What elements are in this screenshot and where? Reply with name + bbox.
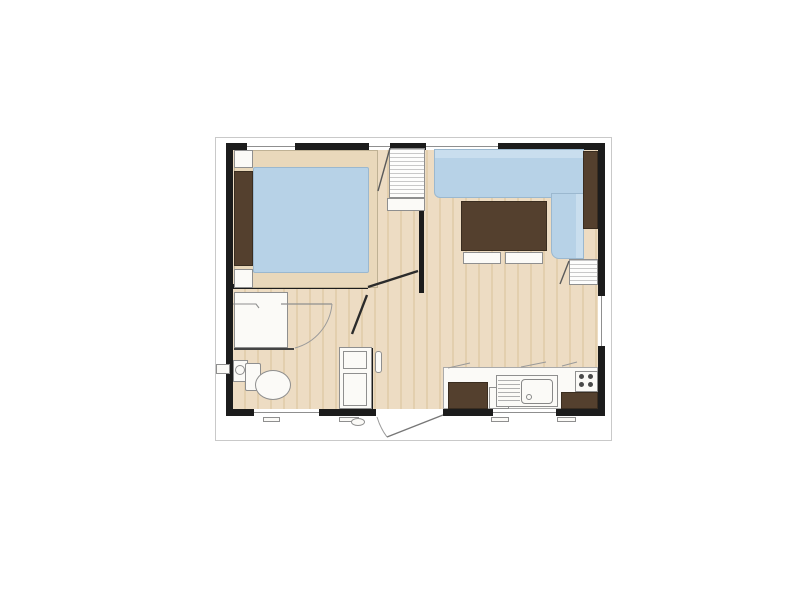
shelf-unit xyxy=(569,259,598,285)
burner-3 xyxy=(579,382,584,387)
burner-2 xyxy=(588,374,593,379)
entry-door-opening xyxy=(376,409,443,416)
wardrobe-base xyxy=(387,198,425,211)
burner-1 xyxy=(579,374,584,379)
entry-door-leaf xyxy=(387,415,443,437)
coffee-table xyxy=(461,201,547,251)
support-foot-3 xyxy=(491,417,509,422)
mattress xyxy=(253,167,369,273)
sideboard xyxy=(583,151,598,229)
floorplan xyxy=(215,137,612,441)
sink-drain xyxy=(526,394,532,400)
window-living-right xyxy=(598,296,605,346)
water-heater xyxy=(375,351,382,373)
window-bedroom-top xyxy=(247,143,295,150)
burner-4 xyxy=(588,382,593,387)
headboard xyxy=(234,171,253,266)
bench-left xyxy=(463,252,501,264)
support-foot-1 xyxy=(263,417,280,422)
entry-door-arc xyxy=(377,417,387,437)
entry-step xyxy=(351,418,365,426)
window-wardrobe-top xyxy=(369,143,390,150)
shower-curb xyxy=(234,348,294,350)
drainboard xyxy=(498,378,520,404)
shower xyxy=(234,292,288,348)
window-bathroom-bottom xyxy=(254,409,319,416)
corner-sofa-top xyxy=(434,149,584,198)
wall-tap xyxy=(216,364,230,374)
vanity-drawer xyxy=(343,351,367,369)
support-foot-4 xyxy=(557,417,576,422)
nightstand-bottom xyxy=(234,269,253,288)
vanity-door xyxy=(343,373,367,406)
nightstand-top xyxy=(234,150,253,168)
bench-right xyxy=(505,252,543,264)
base-cabinet-right xyxy=(561,392,598,409)
base-cabinet-left xyxy=(448,382,488,409)
window-kitchen-bottom xyxy=(493,409,556,416)
wardrobe-shelves xyxy=(389,148,425,198)
corner-sofa-right xyxy=(551,193,584,259)
washbasin-bowl xyxy=(235,365,245,375)
sink-basin xyxy=(521,379,553,404)
toilet-bowl xyxy=(255,370,291,400)
screenshot-canvas xyxy=(0,0,800,600)
